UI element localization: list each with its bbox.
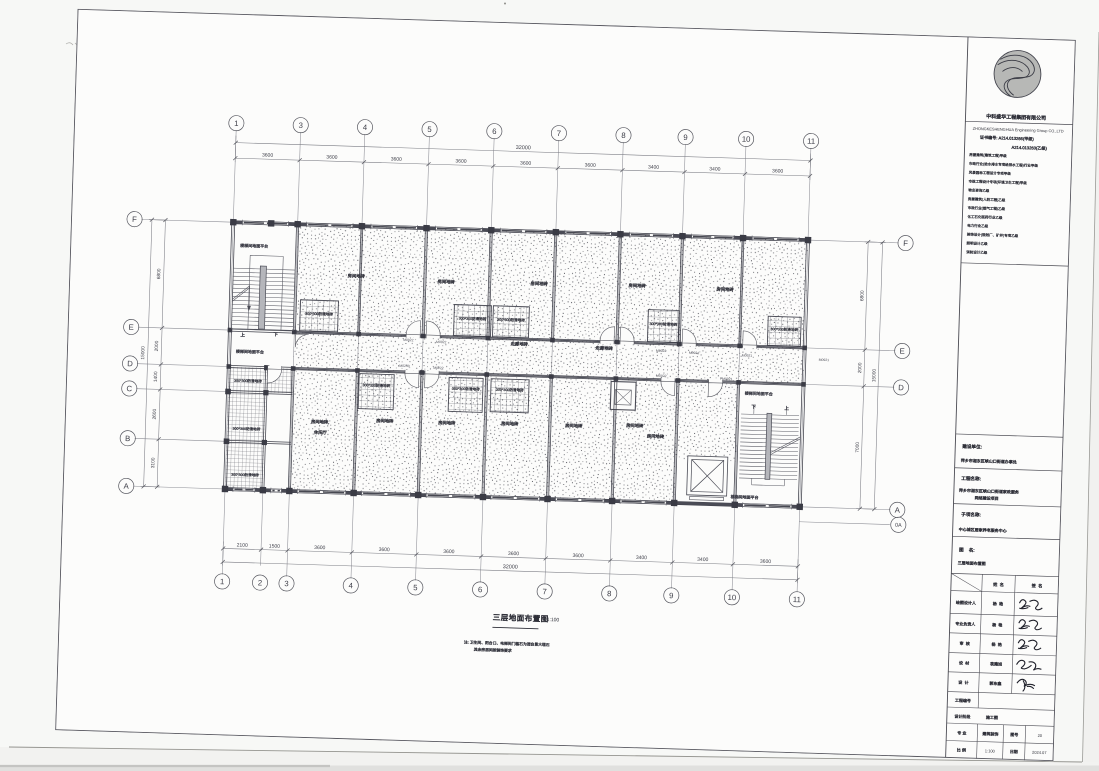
svg-text:D: D: [127, 359, 133, 368]
svg-text:1400: 1400: [152, 371, 158, 382]
svg-text:6800: 6800: [156, 268, 162, 279]
svg-text:M0222: M0222: [433, 365, 444, 369]
svg-text:日期: 日期: [1009, 747, 1017, 753]
svg-text:其余房层间按装饰要求: 其余房层间按装饰要求: [473, 646, 511, 652]
svg-text:4: 4: [362, 122, 367, 131]
svg-text:房间地砖: 房间地砖: [437, 277, 455, 285]
svg-text:走廊地砖: 走廊地砖: [595, 344, 613, 352]
svg-text:杨 艳: 杨 艳: [992, 621, 1002, 627]
svg-text:三层地面布置图: 三层地面布置图: [957, 559, 985, 566]
svg-text:C: C: [126, 384, 132, 393]
svg-text:房间地砖,: 房间地砖,: [310, 418, 329, 426]
svg-text:3600: 3600: [455, 158, 467, 164]
svg-text:设 材: 设 材: [958, 659, 968, 665]
svg-text:3600: 3600: [443, 548, 455, 554]
svg-text:建筑装饰: 建筑装饰: [982, 730, 998, 736]
svg-text:设计阶段: 设计阶段: [954, 712, 970, 718]
svg-text:图 名:: 图 名:: [958, 546, 974, 553]
svg-text:走廊地砖: 走廊地砖: [510, 340, 528, 348]
svg-text:M0230: M0230: [399, 363, 410, 367]
svg-text:3600: 3600: [759, 558, 771, 564]
svg-text:6: 6: [477, 585, 482, 594]
svg-text:7: 7: [542, 587, 547, 596]
svg-text:11: 11: [806, 136, 814, 145]
svg-text:3600: 3600: [771, 168, 783, 174]
svg-text:32000: 32000: [502, 564, 517, 570]
svg-text:D: D: [898, 383, 904, 392]
svg-text:10: 10: [727, 592, 737, 601]
svg-text:15000: 15000: [140, 345, 146, 359]
svg-text:3400: 3400: [647, 164, 659, 170]
svg-text:0A: 0A: [894, 522, 901, 528]
svg-text:M0921: M0921: [688, 350, 699, 354]
svg-text:10: 10: [741, 134, 751, 143]
svg-text:子项名称:: 子项名称:: [961, 510, 981, 518]
svg-text:2600: 2600: [151, 408, 157, 419]
svg-text:上: 上: [784, 404, 789, 410]
svg-text:7: 7: [556, 128, 561, 137]
svg-text:3: 3: [298, 120, 303, 129]
svg-text:市政工程设计专项(环境卫生工程)甲级: 市政工程设计专项(环境卫生工程)甲级: [968, 178, 1027, 185]
svg-text:房间地砖: 房间地砖: [565, 422, 583, 430]
svg-text:M0922: M0922: [403, 337, 414, 341]
svg-text:5: 5: [413, 583, 418, 592]
svg-text:M0922: M0922: [655, 348, 666, 352]
svg-text:3600: 3600: [572, 552, 584, 558]
svg-text:楼梯间地面平台: 楼梯间地面平台: [235, 347, 263, 354]
svg-text:注: 卫生间、阳台口、电梯间门槛石为透台景大理石: 注: 卫生间、阳台口、电梯间门槛石为透台景大理石: [463, 639, 549, 647]
svg-text:3600: 3600: [326, 154, 338, 160]
svg-text:照明设计乙级: 照明设计乙级: [966, 240, 988, 246]
svg-text:装饰设计(规划厂、矿井)专项乙级: 装饰设计(规划厂、矿井)专项乙级: [966, 231, 1018, 238]
svg-text:3400: 3400: [697, 556, 709, 562]
svg-text:1: 1: [219, 577, 224, 586]
svg-text:6: 6: [492, 126, 497, 135]
svg-text:B: B: [124, 433, 129, 442]
svg-text:专 业: 专 业: [957, 729, 966, 735]
svg-text:比 例: 比 例: [956, 746, 965, 752]
svg-text:M0922: M0922: [436, 339, 447, 343]
svg-text:中科盛华工程集团有限公司: 中科盛华工程集团有限公司: [986, 112, 1046, 121]
svg-text:建设单位:: 建设单位:: [962, 442, 982, 450]
svg-text:4: 4: [348, 581, 353, 590]
svg-text:设 计: 设 计: [958, 678, 968, 684]
svg-text:1500: 1500: [268, 543, 280, 549]
svg-text:3400: 3400: [709, 166, 721, 172]
svg-text:20: 20: [1037, 732, 1042, 737]
svg-text:M0921: M0921: [741, 353, 752, 357]
svg-text:袁建旭: 袁建旭: [989, 660, 1001, 666]
svg-text:楼梯间地面平台: 楼梯间地面平台: [744, 389, 772, 396]
svg-text:工程编号: 工程编号: [954, 696, 970, 702]
svg-text:房间地砖: 房间地砖: [626, 421, 644, 429]
svg-text:下: 下: [273, 331, 278, 337]
svg-text:市政行业(给水排水专项给排水工程)行业甲级: 市政行业(给水排水专项给排水工程)行业甲级: [969, 160, 1038, 167]
svg-text:房间地砖: 房间地砖: [628, 281, 646, 289]
svg-text:3600: 3600: [584, 162, 596, 168]
svg-text:E: E: [899, 346, 904, 355]
svg-text:杨 艳: 杨 艳: [992, 600, 1002, 606]
svg-text:5: 5: [427, 124, 432, 133]
svg-text:郭东鑫: 郭东鑫: [989, 679, 1001, 685]
svg-text:A: A: [123, 481, 129, 490]
svg-text:7000: 7000: [854, 441, 860, 452]
svg-text:专业负责人: 专业负责人: [955, 620, 975, 627]
svg-text:2000: 2000: [857, 362, 863, 373]
svg-text:楼梯间地面平台: 楼梯间地面平台: [730, 493, 758, 500]
svg-text:M0921: M0921: [818, 357, 829, 361]
svg-text:三层地面布置图: 三层地面布置图: [492, 611, 548, 623]
svg-text:证书编号: A214.013266(甲级): 证书编号: A214.013266(甲级): [979, 133, 1034, 141]
svg-text:2024.07: 2024.07: [1032, 749, 1047, 754]
svg-text:3: 3: [284, 579, 289, 588]
svg-text:电力行业乙级: 电力行业乙级: [967, 222, 989, 228]
svg-text:3400: 3400: [635, 554, 647, 560]
svg-text:房间地砖: 房间地砖: [501, 420, 519, 428]
svg-text:房间地砖: 房间地砖: [438, 419, 456, 427]
svg-text:工程名称:: 工程名称:: [961, 474, 981, 482]
svg-text:3600: 3600: [520, 160, 532, 166]
svg-text:1: 1: [234, 118, 239, 127]
svg-text:A214.013263(乙级): A214.013263(乙级): [1011, 143, 1047, 150]
svg-text:1:100: 1:100: [984, 748, 995, 753]
svg-text:9: 9: [683, 132, 688, 141]
svg-text:A: A: [894, 505, 900, 514]
svg-text:下: 下: [751, 404, 756, 410]
svg-text:房间地砖: 房间地砖: [716, 285, 734, 293]
svg-text:F: F: [903, 238, 908, 247]
svg-text:8: 8: [606, 589, 611, 598]
svg-text:3600: 3600: [378, 546, 390, 552]
svg-text:2: 2: [257, 578, 262, 587]
svg-text:3600: 3600: [390, 156, 402, 162]
svg-text:杨 艳: 杨 艳: [991, 640, 1001, 646]
svg-text:房屋建筑(建筑工程)甲级: 房屋建筑(建筑工程)甲级: [969, 151, 1007, 157]
svg-text:2000: 2000: [153, 340, 159, 351]
svg-text:物业咨询乙级: 物业咨询乙级: [968, 187, 990, 193]
svg-text:市政行业(燃气工程)乙级: 市政行业(燃气工程)乙级: [967, 205, 1005, 211]
svg-text:6800: 6800: [859, 289, 865, 300]
svg-text:中心城区居家养老服务中心: 中心城区居家养老服务中心: [958, 525, 1006, 532]
svg-text:房间地砖: 房间地砖: [530, 279, 548, 287]
svg-text:审 核: 审 核: [959, 639, 969, 645]
svg-text:网络建设项目: 网络建设项目: [974, 494, 998, 501]
svg-text:3600: 3600: [507, 550, 519, 556]
svg-text:房间地砖: 房间地砖: [376, 417, 394, 425]
svg-text:绘图设计人: 绘图设计人: [955, 598, 975, 605]
svg-text:3600: 3600: [314, 544, 326, 550]
svg-text:9: 9: [668, 591, 673, 600]
svg-text:房屋建筑(人防工程)乙级: 房屋建筑(人防工程)乙级: [967, 196, 1005, 202]
svg-text:图号: 图号: [1010, 730, 1018, 736]
svg-text:风景园林工程设计专项甲级: 风景园林工程设计专项甲级: [968, 169, 1011, 175]
svg-text:E: E: [128, 322, 133, 331]
svg-text:化工石化医药行业乙级: 化工石化医药行业乙级: [967, 213, 1003, 219]
svg-text:2100: 2100: [236, 542, 248, 548]
svg-text:FM0921: FM0921: [719, 376, 732, 380]
svg-text:ZHONGKESHENGHUA Engineering Gr: ZHONGKESHENGHUA Engineering Group CO.,LT…: [972, 125, 1063, 133]
svg-text:楼梯间地面平台: 楼梯间地面平台: [240, 241, 268, 248]
svg-text:8: 8: [621, 130, 626, 139]
svg-text:萍乡市湘东区峡山口街道办事处: 萍乡市湘东区峡山口街道办事处: [960, 456, 1016, 464]
svg-text:3600: 3600: [261, 152, 273, 158]
svg-text:F: F: [132, 214, 137, 223]
svg-text:房间地砖: 房间地砖: [347, 272, 365, 280]
svg-text:姓 名: 姓 名: [993, 580, 1004, 587]
svg-text:签 名: 签 名: [1031, 582, 1042, 589]
svg-text:M0922: M0922: [656, 373, 667, 377]
svg-text:3100: 3100: [150, 457, 156, 468]
svg-text:15000: 15000: [871, 368, 877, 382]
svg-text:施工图: 施工图: [985, 713, 997, 719]
svg-text:房间地砖: 房间地砖: [646, 432, 664, 440]
svg-text:萍乡市湘东区峡山口街道家政服务: 萍乡市湘东区峡山口街道家政服务: [958, 486, 1018, 494]
svg-text:11: 11: [792, 594, 800, 603]
svg-text:1:100: 1:100: [546, 617, 559, 623]
svg-text:上: 上: [240, 331, 245, 337]
svg-text:32000: 32000: [515, 144, 530, 150]
svg-text:休闲厅: 休闲厅: [313, 428, 327, 435]
svg-text:消防设计乙级: 消防设计乙级: [966, 249, 988, 255]
